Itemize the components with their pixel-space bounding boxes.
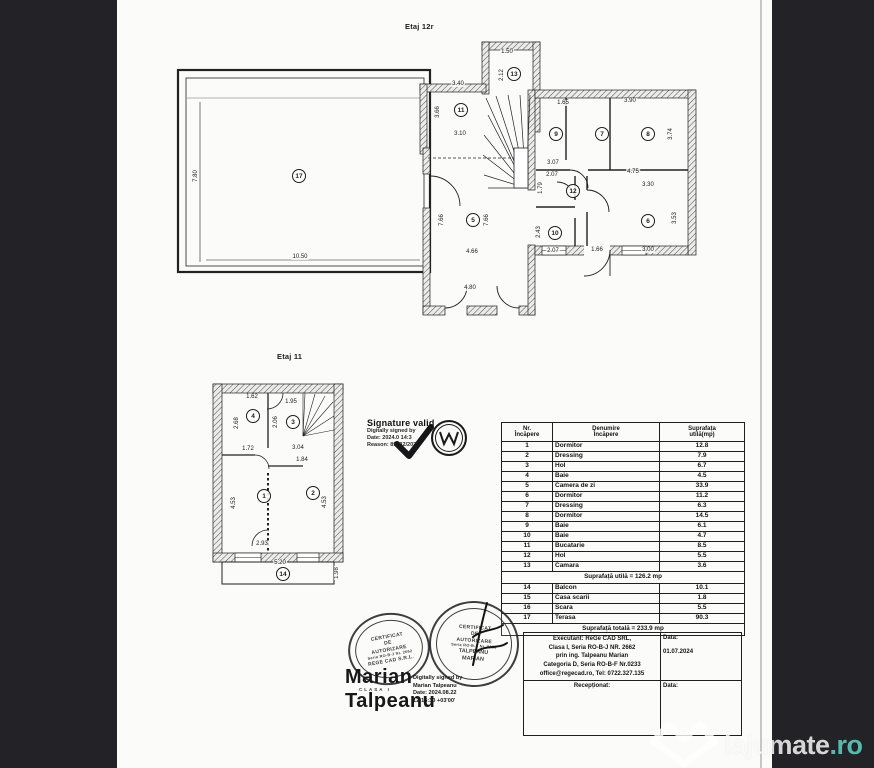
dimension-label: 4.80 — [463, 285, 477, 291]
room-name-cell: Baie — [553, 472, 660, 482]
room-number-cell: 4 — [502, 472, 553, 482]
table-header-row: Nr. Încăpere Denumire Încăpere Suprafața… — [502, 423, 745, 442]
room-name-cell: Scara — [553, 604, 660, 614]
floor-plan-labels-etaj11: 4312141.621.952.682.061.723.041.844.534.… — [205, 378, 350, 593]
floor-title-etaj12: Etaj 12r — [405, 22, 434, 31]
dimension-label: 3.53 — [672, 211, 678, 225]
room-area-cell: 90.3 — [660, 614, 745, 624]
room-table-body: 1Dormitor12.82Dressing7.93Hol6.74Baie4.5… — [502, 442, 745, 636]
table-row: 1Dormitor12.8 — [502, 442, 745, 452]
table-row: 11Bucatarie8.5 — [502, 542, 745, 552]
digital-signature-line: Marian Talpeanu — [413, 683, 483, 691]
table-row: 9Baie6.1 — [502, 522, 745, 532]
dimension-label: 1.84 — [295, 457, 309, 463]
room-name-cell: Dressing — [553, 452, 660, 462]
checkmark-icon — [393, 424, 435, 460]
table-row: 5Camera de zi33.9 — [502, 482, 745, 492]
dimension-label: 10.50 — [291, 254, 308, 260]
digital-signature-line: Date: 2024.08.22 — [413, 690, 483, 698]
floor-plan-etaj12: 1711135978121067.8010.501.502.123.403.66… — [170, 40, 700, 335]
room-area-cell: 14.5 — [660, 512, 745, 522]
room-name-cell: Bucatarie — [553, 542, 660, 552]
room-number-cell: 7 — [502, 502, 553, 512]
receptionat-cell: Recepționat: — [524, 681, 661, 736]
dimension-label: 3.74 — [668, 127, 674, 141]
room-number-label: 4 — [246, 409, 260, 423]
room-number-label: 17 — [292, 169, 306, 183]
table-row: 16Scara5.5 — [502, 604, 745, 614]
dimension-label: 3.40 — [451, 81, 465, 87]
signature-valid-block: Signature valid Digitally signed by Date… — [367, 418, 497, 449]
room-number-label: 5 — [466, 213, 480, 227]
room-area-cell: 5.5 — [660, 552, 745, 562]
floor-plan-etaj11: 4312141.621.952.682.061.723.041.844.534.… — [205, 378, 350, 593]
seal-monogram-icon — [438, 427, 460, 449]
room-number-label: 13 — [507, 67, 521, 81]
date-label: Data: — [663, 635, 739, 641]
subtotal-row-cell: Suprafață utilă = 126.2 mp — [502, 572, 745, 584]
room-number-label: 7 — [595, 127, 609, 141]
room-name-cell: Terasa — [553, 614, 660, 624]
table-row: 12Hol5.5 — [502, 552, 745, 562]
dimension-label: 3.90 — [623, 98, 637, 104]
executant-info-line: office@regecad.ro, Tel: 0722.327.135 — [526, 670, 658, 679]
room-number-label: 11 — [454, 103, 468, 117]
table-row: 10Baie4.7 — [502, 532, 745, 542]
dimension-label: 1.62 — [245, 394, 259, 400]
room-name-cell: Dormitor — [553, 442, 660, 452]
table-row: 6Dormitor11.2 — [502, 492, 745, 502]
floor-plan-labels-etaj12: 1711135978121067.8010.501.502.123.403.66… — [170, 40, 700, 335]
dimension-label: 2.07 — [546, 248, 560, 254]
executant-info-line: Clasa I, Seria RO-B-J NR. 2662 — [526, 644, 658, 653]
room-number-label: 14 — [276, 567, 290, 581]
room-name-cell: Baie — [553, 522, 660, 532]
dimension-label: 3.10 — [453, 131, 467, 137]
room-area-cell: 8.5 — [660, 542, 745, 552]
room-area-cell: 1.8 — [660, 594, 745, 604]
room-number-cell: 11 — [502, 542, 553, 552]
dimension-label: 1.95 — [284, 399, 298, 405]
dimension-label: 3.66 — [435, 105, 441, 119]
room-number-cell: 13 — [502, 562, 553, 572]
table-row: 7Dressing6.3 — [502, 502, 745, 512]
dimension-label: 1.50 — [500, 49, 514, 55]
room-area-cell: 12.8 — [660, 442, 745, 452]
table-row: 8Dormitor14.5 — [502, 512, 745, 522]
header-denumire: Denumire Încăpere — [553, 423, 660, 442]
room-number-label: 2 — [306, 486, 320, 500]
scan-page-edge — [760, 0, 762, 768]
room-number-label: 6 — [641, 214, 655, 228]
dimension-label: 5.20 — [273, 560, 287, 566]
dimension-label: 7.66 — [484, 213, 490, 227]
screenshot-stage: Etaj 12r Etaj 11 — [0, 0, 874, 768]
room-name-cell: Dormitor — [553, 512, 660, 522]
room-area-cell: 6.7 — [660, 462, 745, 472]
dimension-label: 4.75 — [626, 169, 640, 175]
table-row: 15Casa scarii1.8 — [502, 594, 745, 604]
dimension-label: 1.65 — [556, 100, 570, 106]
room-area-cell: 3.6 — [660, 562, 745, 572]
executant-date-cell: Data: 01.07.2024 — [661, 633, 742, 681]
table-row: 2Dressing7.9 — [502, 452, 745, 462]
header-nr: Nr. Încăpere — [502, 423, 553, 442]
watermark-text: lajumate.ro — [724, 730, 863, 761]
dimension-label: 2.12 — [499, 68, 505, 82]
dimension-label: 2.93 — [255, 541, 269, 547]
table-row: 14Balcon10.1 — [502, 584, 745, 594]
floor-title-etaj11: Etaj 11 — [277, 352, 302, 361]
room-number-cell: 12 — [502, 552, 553, 562]
watermark-brand: lajumate — [724, 730, 830, 760]
table-row: 4Baie4.5 — [502, 472, 745, 482]
dimension-label: 4.53 — [322, 495, 328, 509]
dimension-label: 7.80 — [193, 169, 199, 183]
room-area-cell: 6.1 — [660, 522, 745, 532]
lajumate-logo-icon — [648, 720, 720, 768]
header-suprafata: Suprafața utilă(mp) — [660, 423, 745, 442]
room-number-label: 9 — [549, 127, 563, 141]
room-area-cell: 10.1 — [660, 584, 745, 594]
executant-info-line: prin ing. Talpeanu Marian — [526, 652, 658, 661]
notary-seal-icon — [431, 420, 467, 456]
room-name-cell: Dressing — [553, 502, 660, 512]
room-number-label: 12 — [566, 184, 580, 198]
watermark-tld: .ro — [830, 730, 863, 760]
executant-info-cell: Executant: ReGe CAD SRL,Clasa I, Seria R… — [524, 633, 661, 681]
room-name-cell: Hol — [553, 552, 660, 562]
dimension-label: 2.07 — [545, 172, 559, 178]
room-number-cell: 10 — [502, 532, 553, 542]
room-number-cell: 1 — [502, 442, 553, 452]
dimension-label: 3.30 — [641, 182, 655, 188]
dimension-label: 7.66 — [439, 213, 445, 227]
room-number-label: 1 — [257, 489, 271, 503]
dimension-label: 3.07 — [546, 160, 560, 166]
digital-signature-line: 12:16:30 +03'00' — [413, 698, 483, 706]
table-row: 3Hol6.7 — [502, 462, 745, 472]
room-number-cell: 6 — [502, 492, 553, 502]
room-areas-table: Nr. Încăpere Denumire Încăpere Suprafața… — [501, 422, 745, 636]
room-number-cell: 8 — [502, 512, 553, 522]
date-value: 01.07.2024 — [663, 649, 739, 655]
executant-row: Executant: ReGe CAD SRL,Clasa I, Seria R… — [524, 633, 742, 681]
dimension-label: 2.43 — [536, 225, 542, 239]
table-row: 17Terasa90.3 — [502, 614, 745, 624]
lajumate-watermark: lajumate.ro — [648, 720, 863, 768]
scanned-document-page: Etaj 12r Etaj 11 — [117, 0, 772, 768]
dimension-label: 1.79 — [538, 181, 544, 195]
room-name-cell: Casa scarii — [553, 594, 660, 604]
room-name-cell: Baie — [553, 532, 660, 542]
dimension-label: 2.06 — [273, 415, 279, 429]
room-name-cell: Hol — [553, 462, 660, 472]
dimension-label: 1.98 — [334, 566, 340, 580]
room-area-cell: 33.9 — [660, 482, 745, 492]
room-area-cell: 4.7 — [660, 532, 745, 542]
subtotal-row: Suprafață utilă = 126.2 mp — [502, 572, 745, 584]
room-name-cell: Camara — [553, 562, 660, 572]
room-number-cell: 2 — [502, 452, 553, 462]
table-row: 13Camara3.6 — [502, 562, 745, 572]
room-area-cell: 4.5 — [660, 472, 745, 482]
room-area-cell: 7.9 — [660, 452, 745, 462]
dimension-label: 1.72 — [241, 446, 255, 452]
digital-signature-details: Digitally signed byMarian TalpeanuDate: … — [413, 675, 483, 705]
room-number-cell: 5 — [502, 482, 553, 492]
dimension-label: 3.00 — [641, 247, 655, 253]
room-area-cell: 5.5 — [660, 604, 745, 614]
room-number-cell: 14 — [502, 584, 553, 594]
dimension-label: 4.66 — [465, 249, 479, 255]
room-number-label: 8 — [641, 127, 655, 141]
room-name-cell: Dormitor — [553, 492, 660, 502]
dimension-label: 1.66 — [590, 247, 604, 253]
dimension-label: 3.04 — [291, 445, 305, 451]
room-name-cell: Camera de zi — [553, 482, 660, 492]
room-area-cell: 6.3 — [660, 502, 745, 512]
room-number-label: 10 — [548, 226, 562, 240]
digital-signature-line: Digitally signed by — [413, 675, 483, 683]
executant-info-line: Categoria D, Seria RO-B-F Nr.0233 — [526, 661, 658, 670]
executant-info-line: Executant: ReGe CAD SRL, — [526, 635, 658, 644]
room-number-cell: 3 — [502, 462, 553, 472]
room-name-cell: Balcon — [553, 584, 660, 594]
room-number-label: 3 — [286, 415, 300, 429]
dimension-label: 2.68 — [234, 416, 240, 430]
handwritten-signature-icon — [447, 595, 517, 675]
room-number-cell: 9 — [502, 522, 553, 532]
room-area-cell: 11.2 — [660, 492, 745, 502]
dimension-label: 4.53 — [231, 496, 237, 510]
